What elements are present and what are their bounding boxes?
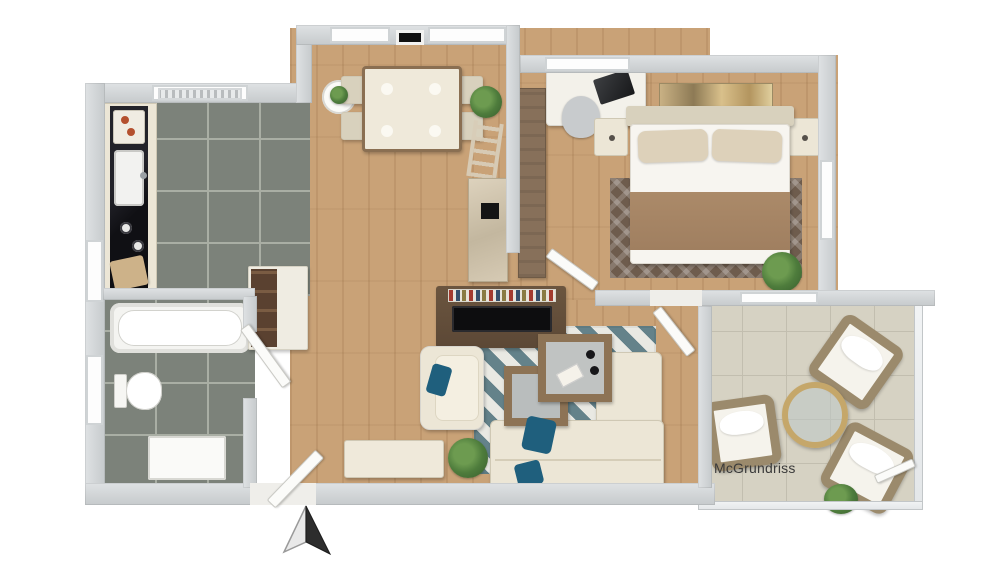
table-place-dot bbox=[429, 83, 441, 95]
nightstand-knob bbox=[802, 135, 808, 141]
tv-screen bbox=[452, 306, 552, 332]
bed-wall-art bbox=[660, 84, 772, 106]
watermark-text: McGrundriss bbox=[714, 460, 796, 476]
bed-blanket bbox=[630, 192, 790, 250]
bedroom-terrace-french-window bbox=[740, 292, 818, 304]
bathroom-right-wall-lower bbox=[243, 398, 257, 488]
bed-pillow-right bbox=[711, 129, 782, 163]
bed-headboard bbox=[626, 106, 794, 126]
bathtub-basin bbox=[118, 310, 242, 346]
bedroom-right-window bbox=[820, 160, 834, 240]
console-bookshelf bbox=[448, 289, 556, 302]
sideboard bbox=[344, 440, 444, 478]
tomato bbox=[121, 116, 129, 124]
decor-fireplace-column bbox=[468, 178, 508, 282]
kitchen-cutting-board-tomatoes bbox=[113, 110, 145, 144]
kitchen-faucet bbox=[140, 172, 147, 179]
kitchen-bathroom-divider-wall bbox=[103, 288, 255, 300]
toilet-bowl bbox=[126, 372, 162, 410]
dining-corner-plant bbox=[470, 86, 502, 118]
armchair bbox=[420, 346, 484, 430]
north-arrow-icon bbox=[276, 502, 338, 558]
left-wall-window-upper bbox=[86, 240, 103, 302]
shower-tray bbox=[148, 436, 226, 480]
dining-window-right bbox=[428, 27, 506, 43]
table-cup bbox=[586, 350, 595, 359]
north-arrow-right-half bbox=[306, 506, 330, 554]
living-terrace-wall bbox=[698, 306, 712, 488]
floor-plan-render: McGrundriss bbox=[0, 0, 1000, 563]
bedroom-top-window bbox=[545, 57, 630, 71]
fireplace-opening bbox=[481, 203, 499, 219]
terrace-door-opening bbox=[650, 290, 702, 306]
north-arrow-left-half bbox=[284, 506, 306, 552]
terrace-glass-wall-right bbox=[914, 298, 923, 510]
kitchen-hob-burner-1 bbox=[120, 222, 132, 234]
bed-pillow-left bbox=[637, 129, 708, 163]
left-wall-window-lower bbox=[86, 355, 103, 425]
sofa-seat-line bbox=[495, 459, 661, 461]
bedroom-plant bbox=[762, 252, 802, 292]
terrace-glass-wall-bottom bbox=[698, 501, 923, 510]
table-book bbox=[556, 363, 584, 388]
bathtub bbox=[110, 303, 250, 353]
wall-picture-frame bbox=[396, 30, 424, 45]
kitchen-hob-burner-2 bbox=[132, 240, 144, 252]
nightstand-left bbox=[594, 118, 628, 156]
tomato bbox=[127, 128, 135, 136]
table-place-dot bbox=[429, 125, 441, 137]
bottom-exterior-wall bbox=[85, 483, 715, 505]
coffee-table-large bbox=[538, 334, 612, 402]
table-cup bbox=[590, 366, 599, 375]
living-bedroom-divider-wall bbox=[506, 25, 520, 253]
kitchen-window-radiator bbox=[158, 88, 242, 100]
kitchen-sink bbox=[114, 150, 144, 206]
hallway-wardrobe bbox=[518, 88, 546, 278]
table-place-dot bbox=[381, 83, 393, 95]
nightstand-knob bbox=[609, 135, 615, 141]
dining-window-left bbox=[330, 27, 390, 43]
living-room-plant bbox=[448, 438, 488, 478]
dining-table bbox=[362, 66, 462, 152]
terrace-round-table bbox=[782, 382, 848, 448]
table-place-dot bbox=[381, 125, 393, 137]
side-table-plant bbox=[330, 86, 348, 104]
